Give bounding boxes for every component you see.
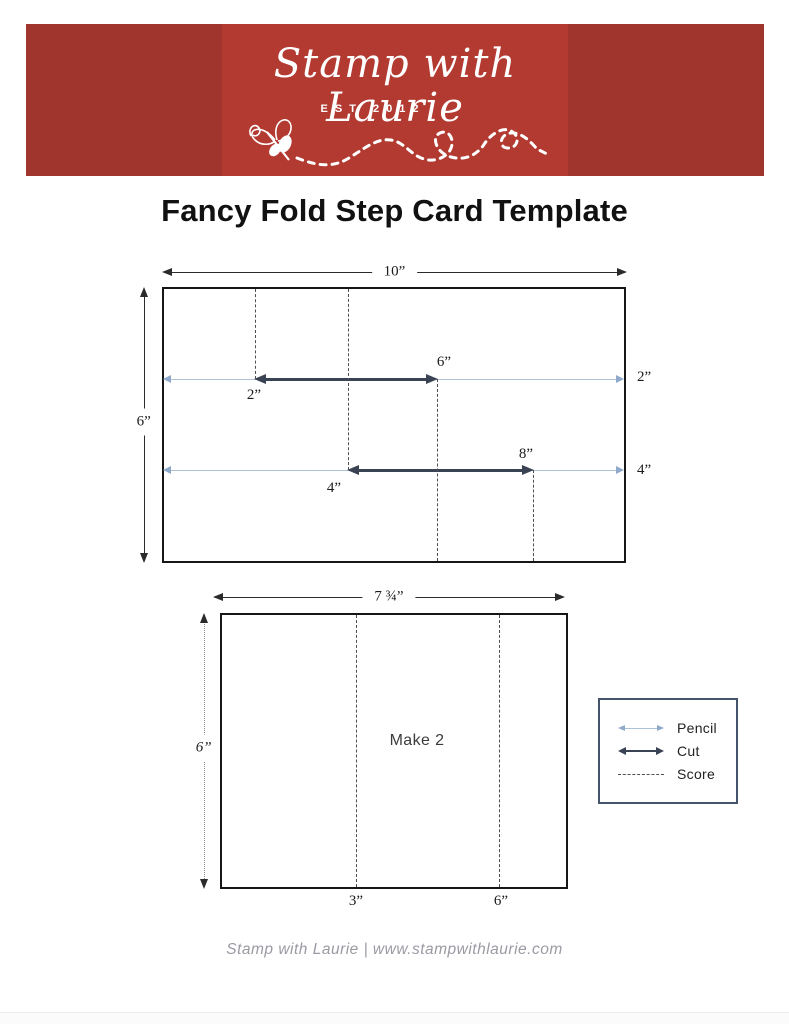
brand-banner: Stamp with Laurie EST 2012 xyxy=(26,24,764,176)
score-line-2in xyxy=(255,289,256,379)
legend-label-cut: Cut xyxy=(677,743,700,759)
page-bottom-edge xyxy=(0,1012,789,1024)
pencil-arrowhead-right-icon xyxy=(616,375,624,383)
height-dimension-label: 6” xyxy=(194,735,214,762)
arrowhead-down-icon xyxy=(200,879,208,889)
arrowhead-right-icon xyxy=(617,268,627,276)
score1-position-label: 3” xyxy=(349,893,363,910)
arrowhead-up-icon xyxy=(200,613,208,623)
page-title: Fancy Fold Step Card Template xyxy=(0,193,789,229)
legend-row-score: Score xyxy=(618,767,736,781)
pencil1-right-label: 2” xyxy=(637,369,651,386)
cut1-right-label: 6” xyxy=(437,354,451,371)
legend-row-cut: Cut xyxy=(618,744,736,758)
score-line-8in xyxy=(533,470,534,561)
cut1-left-label: 2” xyxy=(247,387,261,404)
step-panel-outline xyxy=(220,613,568,889)
pencil2-right-label: 4” xyxy=(637,462,651,479)
cut-line-sample-icon xyxy=(618,747,664,756)
legend-label-pencil: Pencil xyxy=(677,720,717,736)
legend-box: Pencil Cut Score xyxy=(598,698,738,804)
width-dimension-label: 7 ¾” xyxy=(362,589,415,606)
pencil-arrowhead-left-icon xyxy=(163,375,171,383)
arrowhead-left-icon xyxy=(213,593,223,601)
arrowhead-up-icon xyxy=(140,287,148,297)
document-page: Stamp with Laurie EST 2012 Fancy Fold St… xyxy=(0,0,789,1024)
cut2-right-label: 8” xyxy=(519,446,533,463)
score-line-sample-icon xyxy=(618,770,664,779)
cut2-left-label: 4” xyxy=(327,480,341,497)
legend-label-score: Score xyxy=(677,766,715,782)
height-dimension-label: 6” xyxy=(135,409,153,436)
pencil-arrowhead-left-icon xyxy=(163,466,171,474)
score-line-3in xyxy=(356,615,357,887)
score-line-6in xyxy=(499,615,500,887)
arrowhead-right-icon xyxy=(555,593,565,601)
arrowhead-left-icon xyxy=(162,268,172,276)
butterfly-trail-illustration xyxy=(245,110,555,176)
footer-text: Stamp with Laurie | www.stampwithlaurie.… xyxy=(0,941,789,959)
card-base-outline xyxy=(162,287,626,563)
score-line-4in xyxy=(348,289,349,470)
make-2-note: Make 2 xyxy=(347,732,487,750)
score-line-6in xyxy=(437,379,438,561)
score2-position-label: 6” xyxy=(494,893,508,910)
pencil-arrowhead-right-icon xyxy=(616,466,624,474)
legend-row-pencil: Pencil xyxy=(618,721,736,735)
width-dimension-label: 10” xyxy=(372,264,418,281)
pencil-line-sample-icon xyxy=(618,724,664,733)
arrowhead-down-icon xyxy=(140,553,148,563)
